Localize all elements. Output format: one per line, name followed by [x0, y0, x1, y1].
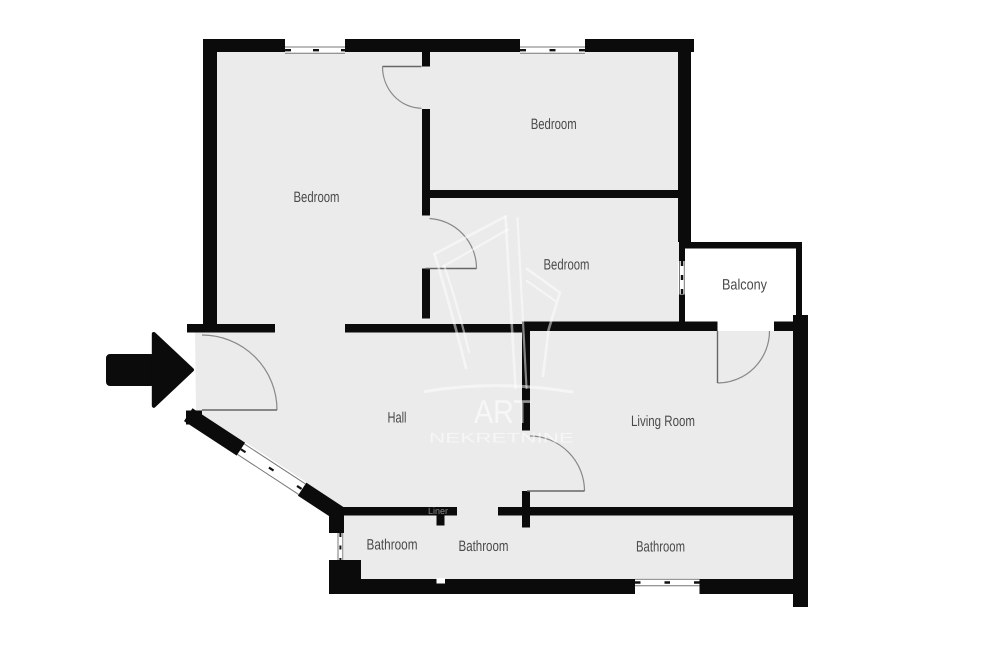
svg-text:Bedroom: Bedroom [531, 116, 577, 133]
svg-text:NEKRETNINE: NEKRETNINE [429, 429, 574, 445]
svg-text:Balcony: Balcony [722, 277, 767, 294]
svg-text:Bedroom: Bedroom [294, 189, 340, 206]
svg-text:Bathroom: Bathroom [636, 539, 685, 556]
svg-text:Hall: Hall [388, 410, 407, 427]
svg-text:Liner: Liner [428, 506, 448, 516]
svg-text:Bedroom: Bedroom [544, 257, 590, 274]
svg-text:Living Room: Living Room [631, 413, 695, 430]
svg-text:ART: ART [474, 393, 531, 430]
svg-text:Bathroom: Bathroom [459, 538, 509, 555]
svg-text:Bathroom: Bathroom [367, 537, 418, 554]
